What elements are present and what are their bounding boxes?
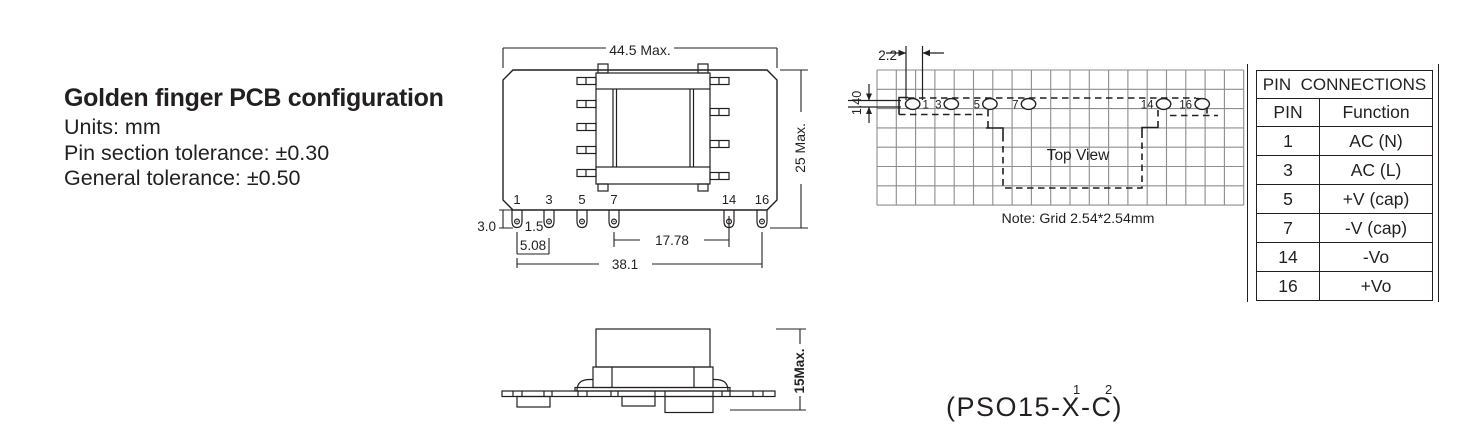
dim-offset-x-label: 2.2: [878, 48, 897, 63]
transformer-body: [596, 329, 710, 367]
top-view-title: Top View: [1047, 147, 1110, 164]
dim-mid-span-label: 17.78: [655, 233, 689, 248]
table-header-pin: PIN: [1257, 99, 1320, 127]
bottom-component-3: [665, 397, 713, 413]
pin-cell: 16: [1257, 272, 1320, 301]
model-footnote-1: 1: [1073, 382, 1080, 397]
function-cell: -V (cap): [1320, 214, 1433, 243]
front-pin-labels: 1 3 5 7 14 16: [513, 192, 769, 207]
bottom-component-2: [622, 397, 655, 407]
top-pin-labels: 1 3 5 7 14 16: [923, 100, 1193, 112]
pin-cell: 14: [1257, 243, 1320, 272]
info-block: Golden finger PCB configuration Units: m…: [64, 84, 484, 192]
bottom-component-1: [517, 397, 550, 408]
dim-pin-length-label: 3.0: [477, 219, 496, 234]
section-title: Golden finger PCB configuration: [64, 84, 484, 113]
table-row: 3 AC (L): [1257, 156, 1433, 185]
side-height-dimension: 15Max.: [730, 329, 807, 410]
general-tolerance-note: General tolerance: ±0.50: [64, 166, 484, 192]
model-number-text: (PSO15-X-C): [946, 392, 1123, 423]
side-view-shapes: [502, 329, 775, 413]
function-cell: AC (N): [1320, 127, 1433, 156]
model-footnote-2: 2: [1105, 382, 1112, 397]
front-view-drawing: 44.5 Max. 25 Max.: [470, 30, 820, 285]
transformer-left-pins: [577, 78, 596, 177]
transformer-base: [593, 367, 713, 388]
table-title: PIN CONNECTIONS: [1257, 71, 1433, 99]
function-cell: -Vo: [1320, 243, 1433, 272]
right-flange: [713, 380, 728, 392]
transformer-right-pins: [710, 78, 729, 180]
front-pin-label-14: 14: [722, 192, 736, 207]
top-view-drawing: 2.2 1.40 1 3 5 7 14 16 Top View Note: Gr…: [845, 42, 1253, 232]
top-pin-label-5: 5: [974, 100, 980, 112]
dim-height-label: 25 Max.: [792, 123, 808, 173]
dim-width-label: 44.5 Max.: [609, 42, 670, 58]
units-note: Units: mm: [64, 115, 484, 141]
function-cell: +Vo: [1320, 272, 1433, 301]
datasheet-page: Golden finger PCB configuration Units: m…: [0, 0, 1473, 429]
pcb-bar: [502, 391, 775, 397]
front-pin-label-7: 7: [610, 192, 617, 207]
transformer-top-view: [577, 64, 729, 191]
top-pin-label-7: 7: [1012, 100, 1018, 112]
pin-cell: 1: [1257, 127, 1320, 156]
table-row: 7 -V (cap): [1257, 214, 1433, 243]
dim-side-height-label: 15Max.: [792, 348, 807, 393]
function-cell: +V (cap): [1320, 185, 1433, 214]
footprint-outline: [899, 98, 1218, 189]
arrow-up-icon: [866, 107, 872, 114]
pin-cell: 7: [1257, 214, 1320, 243]
top-pin-label-14: 14: [1141, 100, 1154, 112]
table-row: 16 +Vo: [1257, 272, 1433, 301]
top-pin-label-3: 3: [935, 100, 941, 112]
grid: [877, 70, 1244, 205]
table-header-function: Function: [1320, 99, 1433, 127]
function-cell: AC (L): [1320, 156, 1433, 185]
width-dimension: 44.5 Max.: [503, 42, 777, 68]
pin-connections-panel: PIN CONNECTIONS PIN Function 1 AC (N) 3 …: [1247, 64, 1439, 302]
side-view-drawing: 15Max.: [495, 322, 810, 422]
pin-cell: 3: [1257, 156, 1320, 185]
top-pin-label-1: 1: [923, 100, 929, 112]
module-outline: [503, 70, 777, 210]
dim-finger-width-label: 1.5: [525, 219, 544, 234]
pin-tolerance-note: Pin section tolerance: ±0.30: [64, 141, 484, 167]
height-dimension: 25 Max.: [770, 70, 808, 228]
pin-cell: 5: [1257, 185, 1320, 214]
table-row: 14 -Vo: [1257, 243, 1433, 272]
front-pin-label-5: 5: [578, 192, 585, 207]
left-flange: [577, 380, 593, 392]
arrow-right-icon: [899, 50, 907, 56]
dim-offset-x: 2.2: [878, 46, 944, 100]
model-number: 1 2 (PSO15-X-C): [946, 382, 1123, 423]
dim-total-span-label: 38.1: [612, 257, 638, 272]
lower-dimensions: 3.0 1.5 5.08 17.78 38.1: [477, 210, 762, 272]
pin-connections-table: PIN CONNECTIONS PIN Function 1 AC (N) 3 …: [1256, 70, 1433, 301]
table-row: 5 +V (cap): [1257, 185, 1433, 214]
arrow-down-icon: [866, 94, 872, 101]
front-pin-label-16: 16: [755, 192, 769, 207]
pin-pads: [906, 99, 1210, 110]
dim-offset-y-label: 1.40: [850, 91, 864, 115]
table-row: 1 AC (N): [1257, 127, 1433, 156]
top-pin-label-16: 16: [1179, 100, 1192, 112]
arrow-left-icon: [923, 50, 931, 56]
front-pin-label-3: 3: [545, 192, 552, 207]
front-pin-label-1: 1: [513, 192, 520, 207]
dim-pitch-label: 5.08: [520, 238, 546, 253]
grid-note: Note: Grid 2.54*2.54mm: [1002, 211, 1155, 227]
